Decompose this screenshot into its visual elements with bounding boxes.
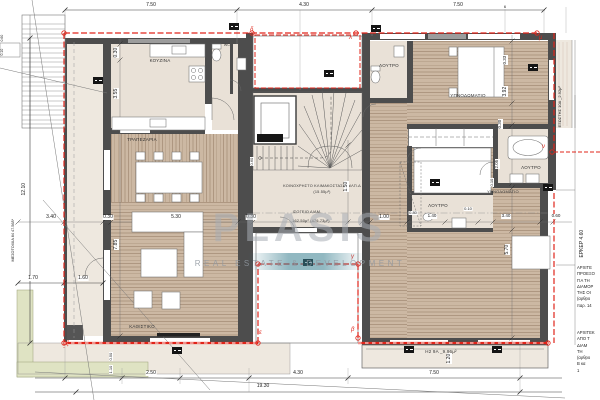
dim-label: 5.30 xyxy=(171,215,182,220)
window-tag-icon xyxy=(324,70,334,77)
room-label-wc: WC xyxy=(224,44,230,48)
dim-label: 1.20 xyxy=(447,353,452,364)
dim-label: 19.30 xyxy=(256,384,270,389)
room-label-bath2: ΛΟΥΤΡΟ xyxy=(521,166,541,171)
dim-label: 0.10 xyxy=(490,178,494,187)
dim-label: 3.55 xyxy=(114,88,119,99)
dim-label: 0.30 xyxy=(114,47,119,58)
dim-label: 0.30 xyxy=(498,119,503,129)
plan-linework xyxy=(0,0,600,400)
dim-label: 5.70 xyxy=(505,244,510,255)
vertex-marker-delta: δ xyxy=(250,27,253,33)
vertex-marker-mu: μ xyxy=(539,35,542,41)
window-tag-icon xyxy=(172,347,182,354)
exterior-stair-icon xyxy=(22,15,65,128)
margin-note-1: ΑΡΧΙΤΕΠΡΟΕΞΟΓΙΑ ΤΗ ΔΙΑΜΟΡΤΗΣ ΟΙ(αρθρο πα… xyxy=(577,265,595,309)
dim-label: 0.30 xyxy=(246,215,257,220)
room-label-dining: ΤΡΑΠΕΖΑΡΙΑ xyxy=(127,138,157,143)
furniture xyxy=(112,44,550,309)
dim-label: 7.50 xyxy=(429,371,440,376)
window-tag-icon xyxy=(303,259,313,266)
dim-label: 3.92 xyxy=(503,86,508,97)
room-label-kitchen: ΚΟΥΖΙΝΑ xyxy=(150,59,171,64)
elevator-icon xyxy=(254,96,296,144)
dim-label: 1.40 xyxy=(427,214,437,219)
dim-label: 0.33 xyxy=(503,55,508,65)
stairwell-area: (15.55μ²) xyxy=(313,191,330,195)
balcony-south-label: Η2 9Α _9.96μ² xyxy=(425,350,456,355)
dim-label: 6 xyxy=(503,5,506,9)
floor-area-value: 162.50μ² (479.73μ²) xyxy=(292,220,330,224)
vertex-marker-nu: ν xyxy=(542,144,545,150)
vertex-marker-beta: β xyxy=(351,327,354,333)
dim-label: 3.40 xyxy=(46,215,57,220)
floor-plan-canvas: ΚΟΥΖΙΝΑ WC ΤΡΑΠΕΖΑΡΙΑ ΚΑΘΙΣΤΙΚΟ ΛΟΥΤΡΟ Λ… xyxy=(0,0,600,400)
dim-label: 0.60 xyxy=(551,214,561,219)
room-label-bedroom1: ΥΠΝΟΔΩΜΑΤΙΟ xyxy=(450,94,485,99)
dim-label: 4.30 xyxy=(299,3,310,8)
window-tag-icon xyxy=(93,77,103,84)
vertex-marker-omicron: ο xyxy=(546,340,549,346)
dim-label: 1.10 xyxy=(109,365,113,374)
window-tag-icon xyxy=(492,346,502,353)
erker-label: ΕΡΚΕΡ 4.60 xyxy=(580,229,585,258)
dim-label: 0.10 xyxy=(1,48,5,56)
vertex-marker-lambda: λ xyxy=(349,35,352,41)
dim-label: 2.05 xyxy=(495,159,500,169)
window-tag-icon xyxy=(371,25,381,32)
dim-label: 1.50 xyxy=(344,181,349,192)
dim-label: 0.80 xyxy=(409,211,418,215)
window-tag-icon xyxy=(543,184,553,191)
window-tag-icon xyxy=(528,64,538,71)
room-label-bath1: ΛΟΥΤΡΟ xyxy=(379,64,399,69)
vertex-marker-epsilon: ε xyxy=(259,330,262,336)
room-label-bath3: ΛΟΥΤΡΟ xyxy=(428,204,448,209)
margin-note-2: ΑΡΧΙΤΕΚΑΠΟ ΤΔΙΑΜ ΤΗ(αρθροΒ κα 1 xyxy=(577,330,595,374)
planter-strips xyxy=(17,290,148,377)
dim-label: 12.10 xyxy=(22,182,27,196)
dim-label: 0.60 xyxy=(1,34,5,42)
dim-label: 4.30 xyxy=(293,371,304,376)
dim-label: 7.50 xyxy=(453,3,464,8)
dim-label: 0.30 xyxy=(103,215,114,220)
vertex-marker-zeta: ζ xyxy=(66,341,69,347)
stairwell-label: ΚΟΙΝΟΧΡΗΣΤΟ ΚΛΙΜΑΚΟΣΤΑΣΙΟ ΚΛΠ.Δ xyxy=(283,185,361,189)
dim-label: 1.70 xyxy=(28,276,39,281)
dim-label: 2.50 xyxy=(146,371,157,376)
window-tag-icon xyxy=(430,179,440,186)
dim-label: 7.50 xyxy=(146,3,157,8)
room-label-living: ΚΑΘΙΣΤΙΚΟ xyxy=(129,325,155,330)
dim-label: 0.60 xyxy=(250,157,254,166)
dim-label: 3.40 xyxy=(501,214,511,219)
vertex-marker-gamma: γ xyxy=(351,254,354,260)
party-wall-label: ΜΕΣΟΤΟΙΧΙΑ 84 47.56δ* xyxy=(12,218,16,262)
dim-label: 0.50 xyxy=(109,352,113,361)
tv-unit xyxy=(157,333,200,337)
window-tag-icon xyxy=(404,346,414,353)
dim-label: 1.00 xyxy=(379,215,390,220)
window-tag-icon xyxy=(229,23,239,30)
floor-area-label: ΙΣΟΓΕΙΟ ΔΙΑΜ. xyxy=(293,211,322,215)
balcony-east-label: ΕΞΩΣΤΗΣ 10Α _2.92μ² xyxy=(558,86,562,128)
dim-label: 0.10 xyxy=(464,207,473,211)
dim-label: 1.60 xyxy=(78,276,89,281)
dim-label: 7.85 xyxy=(114,239,119,250)
room-label-bedroom2: ΥΠΝΟΔΩΜΑΤΙΟ xyxy=(487,190,519,194)
